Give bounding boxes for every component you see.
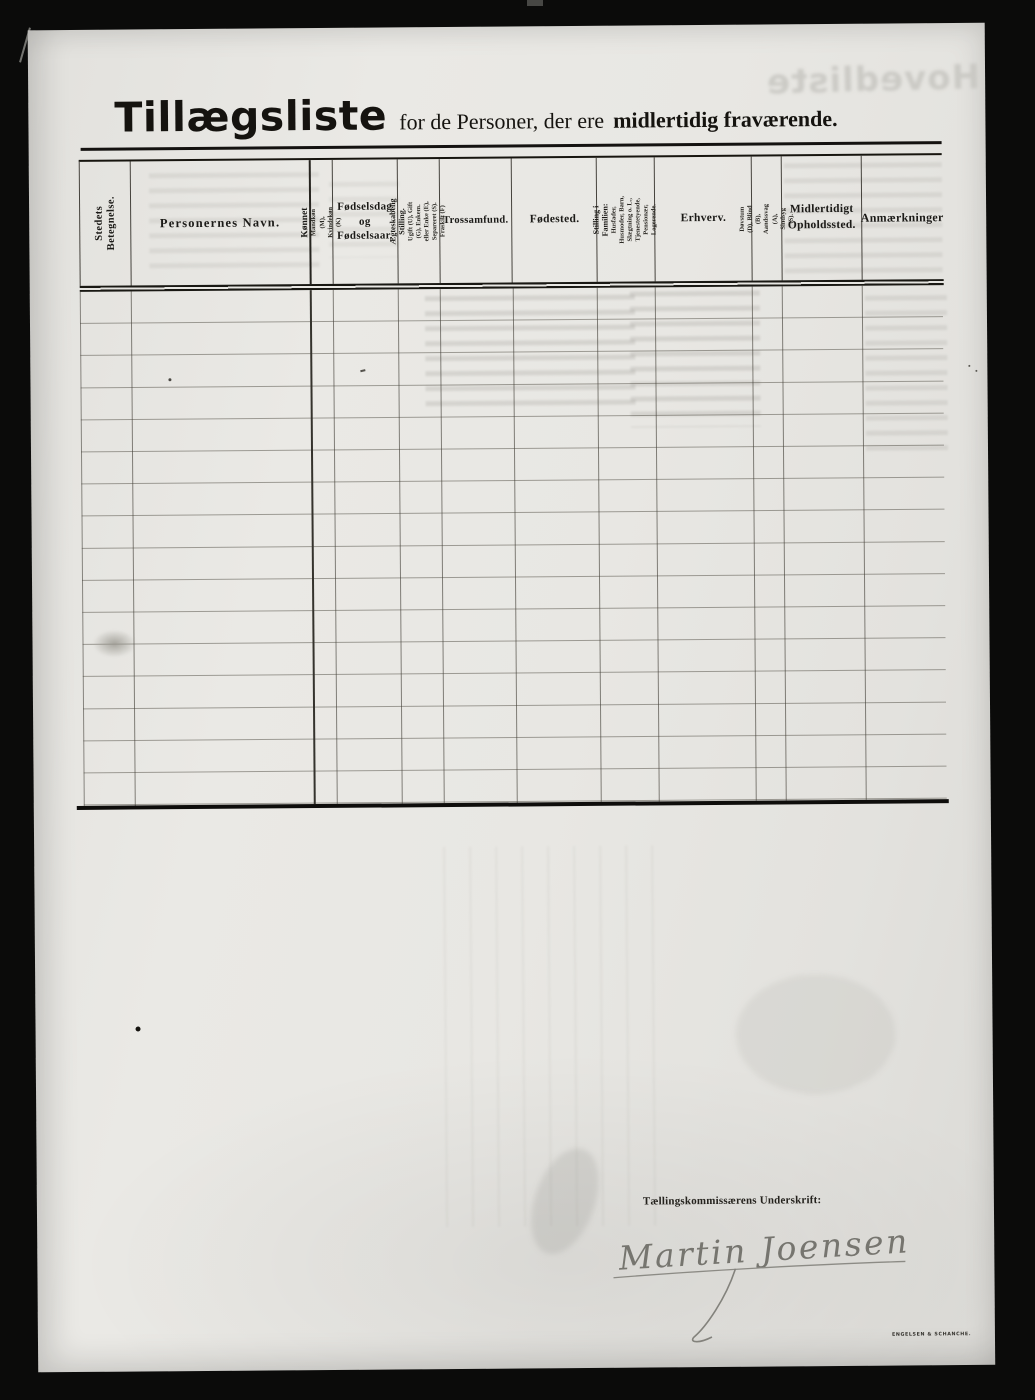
col-header-label: Stedets Betegnelse. xyxy=(93,196,117,250)
col-header-label: Stilling i Familien: xyxy=(593,191,611,248)
col-header-label: Anmærkninger xyxy=(859,209,946,226)
census-form-paper: Hovedliste Tillægsliste for de Personer,… xyxy=(28,23,996,1372)
col-header-midlertidigt-opholdssted: Midlertidigt Opholdssted. xyxy=(782,156,863,281)
ink-speck xyxy=(168,378,171,381)
table-body xyxy=(80,285,947,806)
scanned-census-page: Hovedliste Tillægsliste for de Personer,… xyxy=(0,0,1035,1400)
col-header-fodested: Fødested. xyxy=(512,158,598,283)
table-column-cells xyxy=(598,287,660,801)
col-header-label: Kønnet xyxy=(300,207,311,238)
ink-speck xyxy=(968,365,970,367)
table-column-cells xyxy=(398,289,444,803)
table-column-cells xyxy=(440,289,517,804)
form-title: Tillægsliste for de Personer, der ere mi… xyxy=(114,88,838,142)
col-header-label: Fødested. xyxy=(528,212,582,228)
printer-mark: ENGELSEN & SCHANCHE. xyxy=(892,1331,971,1337)
ink-speck xyxy=(975,370,977,372)
ink-speck xyxy=(136,1026,141,1031)
scan-edge-artifact xyxy=(527,0,543,6)
col-header-konnet: Kønnet Mandkøn (M), Kvindekøn (K) xyxy=(310,160,333,284)
col-header-stilling-i-familien: Stilling i Familien: Husfader, Husmoder,… xyxy=(597,157,656,281)
table-column-cells xyxy=(513,288,602,803)
col-header-label: Erhverv. xyxy=(679,211,729,227)
bleedthrough-smudge xyxy=(735,974,896,1095)
col-header-aegteskabelig-stilling: Ægteskabelig Stilling. Ugift (U), Gift (… xyxy=(397,159,440,283)
col-header-trossamfund: Trossamfund. xyxy=(439,159,513,284)
table-column-cells xyxy=(783,286,867,801)
table-column-cells xyxy=(656,287,757,802)
table-header-row: Stedets Betegnelse. Personernes Navn. Kø… xyxy=(79,153,943,286)
table-column-cells xyxy=(753,286,787,800)
signature-text: Martin Joensen xyxy=(617,1221,911,1278)
col-header-sublabel: Husfader, Husmoder, Barn, Slægtning o. L… xyxy=(610,191,659,248)
col-header-anmaerkninger: Anmærkninger xyxy=(862,155,943,280)
col-header-label: Midlertidigt Opholdssted. xyxy=(782,202,861,234)
col-header-personernes-navn: Personernes Navn. xyxy=(131,160,312,285)
col-header-label: Ægteskabelig Stilling. xyxy=(389,198,407,244)
table-column-cells xyxy=(333,289,402,803)
col-header-dovstum: Døvstum (D), Blind (B), Aandssvag (A), S… xyxy=(752,156,783,280)
signature-flourish-stroke xyxy=(692,1269,736,1342)
col-header-label: Trossamfund. xyxy=(441,213,510,228)
form-title-main: Tillægsliste xyxy=(114,91,387,141)
ink-smudge xyxy=(92,629,136,657)
table-column-cells xyxy=(863,285,947,800)
table-column-cells xyxy=(81,292,136,806)
form-title-subtitle: for de Personer, der ere xyxy=(399,108,604,136)
col-header-label: Personernes Navn. xyxy=(158,214,283,232)
title-rule xyxy=(81,141,942,151)
col-header-stedets-betegnelse: Stedets Betegnelse. xyxy=(80,162,132,286)
form-title-subtitle-bold: midlertidig fraværende. xyxy=(613,106,838,134)
table-column-cells xyxy=(132,290,316,805)
handwritten-signature: Martin Joensen xyxy=(605,1209,916,1351)
signature-label: Tællingskommissærens Underskrift: xyxy=(643,1194,822,1207)
